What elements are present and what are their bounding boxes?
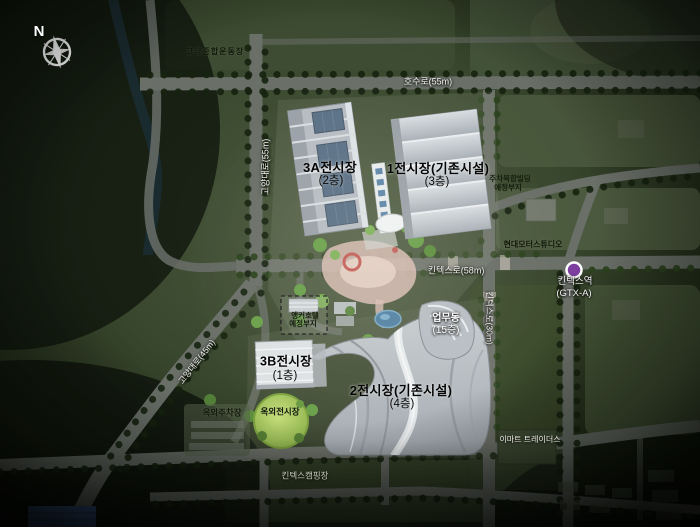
map-graphics (0, 0, 700, 527)
site-plan-map: N 고양종합운동장 호수로(55m) 고양대로(55m) 고양대로(45m) 킨… (0, 0, 700, 527)
